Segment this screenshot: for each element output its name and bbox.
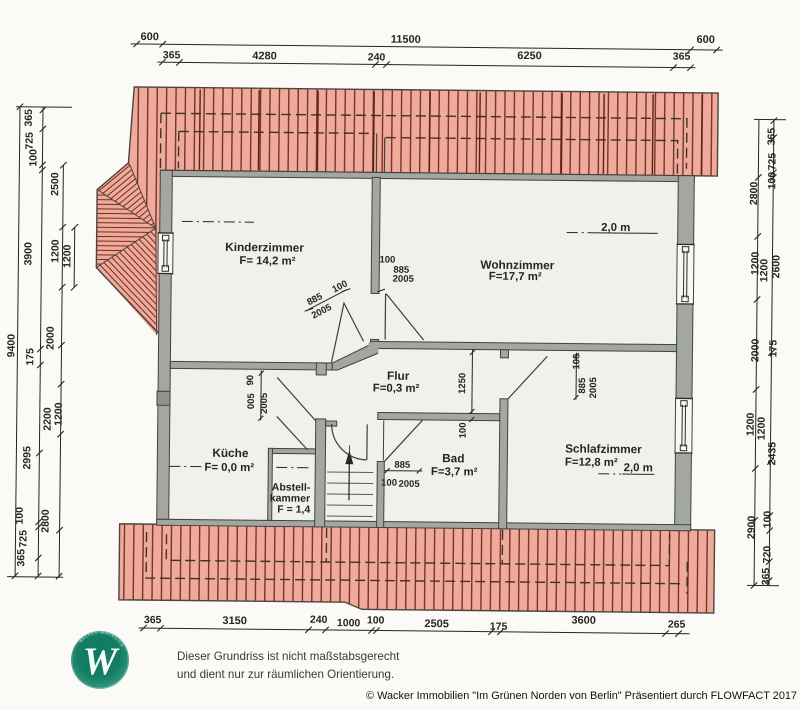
- svg-text:365: 365: [163, 49, 181, 61]
- svg-text:885: 885: [577, 377, 588, 394]
- svg-text:2600: 2600: [770, 255, 782, 279]
- svg-text:9400: 9400: [5, 334, 17, 358]
- svg-text:2005: 2005: [588, 376, 599, 398]
- svg-text:100: 100: [458, 422, 469, 438]
- svg-text:365: 365: [15, 549, 27, 567]
- svg-text:F=12,8 m²: F=12,8 m²: [565, 456, 618, 469]
- svg-text:6250: 6250: [517, 50, 542, 62]
- svg-text:175: 175: [767, 340, 779, 358]
- svg-text:100: 100: [27, 149, 39, 167]
- svg-text:1200: 1200: [758, 259, 770, 283]
- svg-text:365: 365: [766, 128, 778, 146]
- svg-text:Schlafzimmer: Schlafzimmer: [565, 441, 642, 456]
- svg-text:725: 725: [24, 132, 36, 150]
- svg-text:Flur: Flur: [387, 369, 410, 383]
- svg-text:F=0,3 m²: F=0,3 m²: [373, 382, 420, 394]
- svg-text:2995: 2995: [21, 446, 33, 470]
- svg-text:F=17,7 m²: F=17,7 m²: [489, 271, 542, 284]
- svg-text:365: 365: [23, 109, 35, 127]
- svg-text:2435: 2435: [766, 442, 778, 466]
- svg-text:2500: 2500: [49, 172, 61, 196]
- svg-text:© Wacker Immobilien "Im Grünen: © Wacker Immobilien "Im Grünen Norden vo…: [366, 690, 797, 702]
- svg-text:4280: 4280: [252, 50, 277, 62]
- svg-text:3900: 3900: [22, 242, 34, 266]
- svg-text:100: 100: [766, 172, 778, 190]
- svg-text:F = 1,4: F = 1,4: [277, 503, 310, 515]
- svg-text:2005: 2005: [398, 479, 420, 490]
- svg-text:600: 600: [697, 34, 715, 46]
- svg-text:F=3,7 m²: F=3,7 m²: [431, 466, 478, 478]
- svg-text:90: 90: [245, 375, 256, 386]
- svg-text:720: 720: [761, 546, 773, 564]
- svg-text:1200: 1200: [53, 402, 65, 426]
- svg-text:1250: 1250: [457, 373, 468, 394]
- svg-text:Bad: Bad: [442, 451, 464, 465]
- svg-text:100: 100: [367, 614, 385, 626]
- svg-text:2000: 2000: [749, 339, 761, 363]
- svg-text:005: 005: [246, 392, 257, 409]
- svg-text:265: 265: [668, 619, 686, 631]
- svg-text:885: 885: [394, 460, 411, 471]
- svg-text:1200: 1200: [756, 417, 768, 441]
- svg-text:F= 0,0 m²: F= 0,0 m²: [204, 462, 254, 475]
- svg-text:2005: 2005: [259, 392, 270, 414]
- svg-text:175: 175: [490, 621, 508, 633]
- svg-text:2900: 2900: [746, 516, 758, 540]
- svg-text:2800: 2800: [40, 509, 52, 533]
- svg-text:725: 725: [17, 530, 29, 548]
- svg-text:2,0 m: 2,0 m: [624, 462, 653, 474]
- svg-text:2,0 m: 2,0 m: [601, 222, 630, 234]
- svg-text:240: 240: [310, 614, 328, 626]
- svg-text:11500: 11500: [391, 34, 421, 46]
- svg-text:1000: 1000: [337, 617, 361, 629]
- svg-text:600: 600: [141, 31, 159, 43]
- svg-text:100: 100: [762, 511, 774, 529]
- svg-text:3150: 3150: [222, 615, 247, 627]
- svg-text:und dient nur zur räumlichen O: und dient nur zur räumlichen Orientierun…: [177, 668, 394, 681]
- svg-text:3600: 3600: [571, 615, 596, 627]
- svg-text:2000: 2000: [44, 326, 56, 350]
- svg-text:1200: 1200: [49, 239, 61, 263]
- svg-text:2505: 2505: [424, 618, 449, 630]
- svg-text:175: 175: [24, 348, 36, 366]
- svg-text:2005: 2005: [393, 274, 415, 285]
- svg-text:1200: 1200: [61, 244, 73, 268]
- svg-text:365: 365: [144, 614, 162, 626]
- svg-text:100: 100: [571, 354, 582, 370]
- svg-text:W: W: [83, 640, 120, 683]
- svg-text:Küche: Küche: [212, 446, 249, 460]
- svg-text:365: 365: [673, 51, 691, 63]
- svg-text:2800: 2800: [748, 182, 760, 206]
- svg-text:365: 365: [760, 568, 772, 586]
- svg-text:100: 100: [381, 478, 397, 489]
- svg-text:F= 14,2 m²: F= 14,2 m²: [239, 255, 295, 268]
- svg-text:725: 725: [766, 153, 778, 171]
- svg-text:Dieser Grundriss ist nicht maß: Dieser Grundriss ist nicht maßstabsgerec…: [177, 650, 400, 663]
- svg-text:100: 100: [14, 507, 26, 525]
- svg-text:240: 240: [368, 51, 386, 63]
- svg-text:Kinderzimmer: Kinderzimmer: [225, 240, 304, 255]
